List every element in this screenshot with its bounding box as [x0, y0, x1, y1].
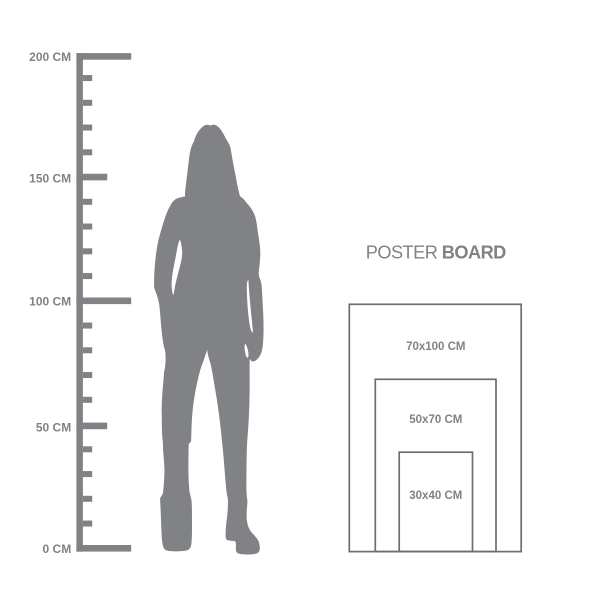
svg-text:POSTER BOARD: POSTER BOARD — [366, 242, 506, 262]
svg-text:30x40 CM: 30x40 CM — [409, 490, 462, 502]
svg-text:70x100 CM: 70x100 CM — [406, 341, 465, 353]
svg-text:0 CM: 0 CM — [43, 542, 72, 556]
svg-text:150 CM: 150 CM — [29, 171, 71, 185]
svg-text:50 CM: 50 CM — [36, 420, 71, 434]
svg-text:200 CM: 200 CM — [29, 50, 71, 64]
svg-text:100 CM: 100 CM — [29, 295, 71, 309]
svg-text:50x70 CM: 50x70 CM — [409, 414, 462, 426]
